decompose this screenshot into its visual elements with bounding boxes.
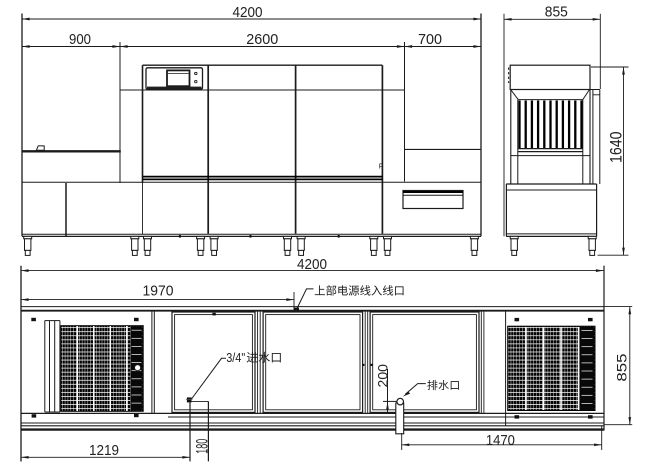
svg-text:1970: 1970 [143,283,174,300]
svg-text:1640: 1640 [608,131,626,163]
svg-text:4200: 4200 [233,4,263,21]
svg-text:855: 855 [613,353,629,381]
svg-text:900: 900 [69,31,91,48]
svg-text:2600: 2600 [246,31,278,48]
svg-text:180: 180 [193,439,212,454]
svg-text:1219: 1219 [89,442,119,459]
svg-text:3/4": 3/4" [226,351,245,365]
svg-text:4200: 4200 [297,256,327,273]
svg-text:700: 700 [418,31,442,48]
svg-text:200: 200 [375,364,391,388]
svg-text:F: F [379,162,384,171]
svg-text:855: 855 [545,4,568,21]
svg-text:1470: 1470 [486,432,515,449]
